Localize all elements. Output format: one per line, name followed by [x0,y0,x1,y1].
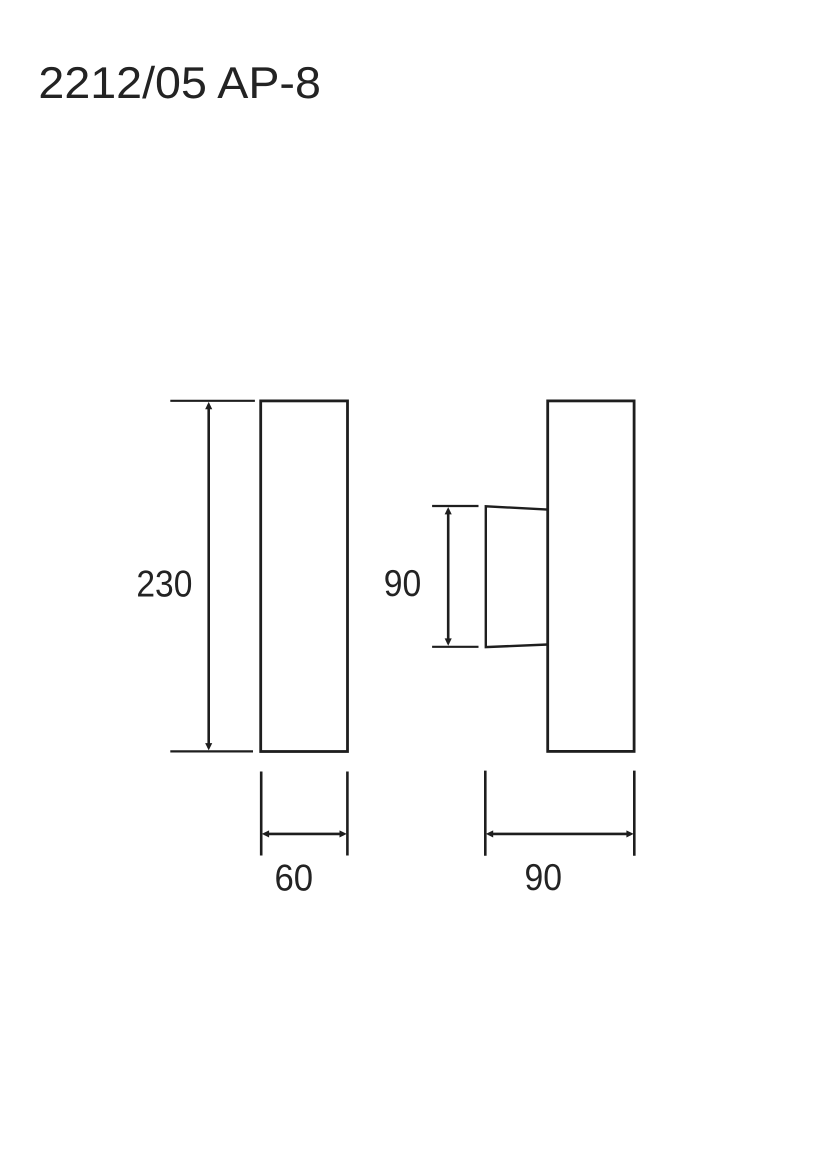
svg-text:90: 90 [384,562,422,604]
svg-text:230: 230 [136,562,192,604]
svg-text:90: 90 [525,856,563,898]
svg-text:2212/05 AP-8: 2212/05 AP-8 [38,59,321,108]
svg-text:60: 60 [275,857,314,899]
